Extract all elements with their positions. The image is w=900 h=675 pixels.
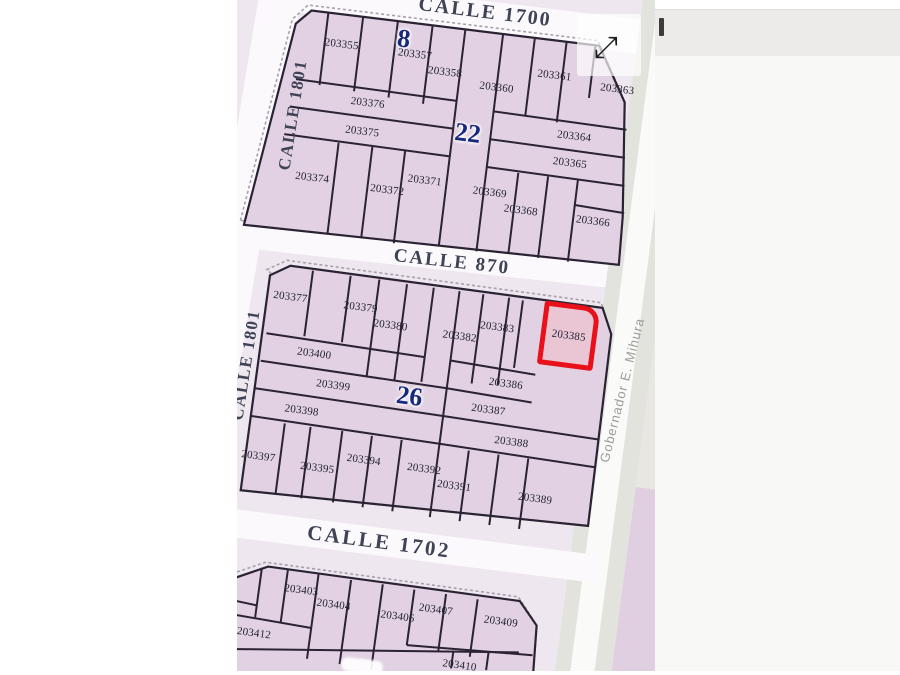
block-bottom-partial[interactable]: 203401 203403 203404 203406 203407 20340… <box>237 558 554 671</box>
page-top-strip <box>655 0 900 9</box>
page-bottom-strip <box>0 671 900 675</box>
block-number: 22 <box>453 117 482 150</box>
north-arrow-icon: ⤢ <box>577 14 641 76</box>
clipped-ui-fragment <box>659 18 664 36</box>
diagonal-arrow-glyph: ⤢ <box>594 30 618 65</box>
cadastral-map[interactable]: 8 22 203355 203357 203358 203360 203361 … <box>237 0 655 671</box>
page-background <box>655 0 900 675</box>
page-header-band <box>655 9 900 56</box>
highlighted-parcel-203385[interactable]: 203385 <box>537 300 601 371</box>
block-number: 26 <box>395 380 425 413</box>
block-manzana-26[interactable]: 203385 26 203377 203379 203380 203382 20… <box>237 259 625 546</box>
parcel-label-203385[interactable]: 203385 <box>551 328 586 344</box>
